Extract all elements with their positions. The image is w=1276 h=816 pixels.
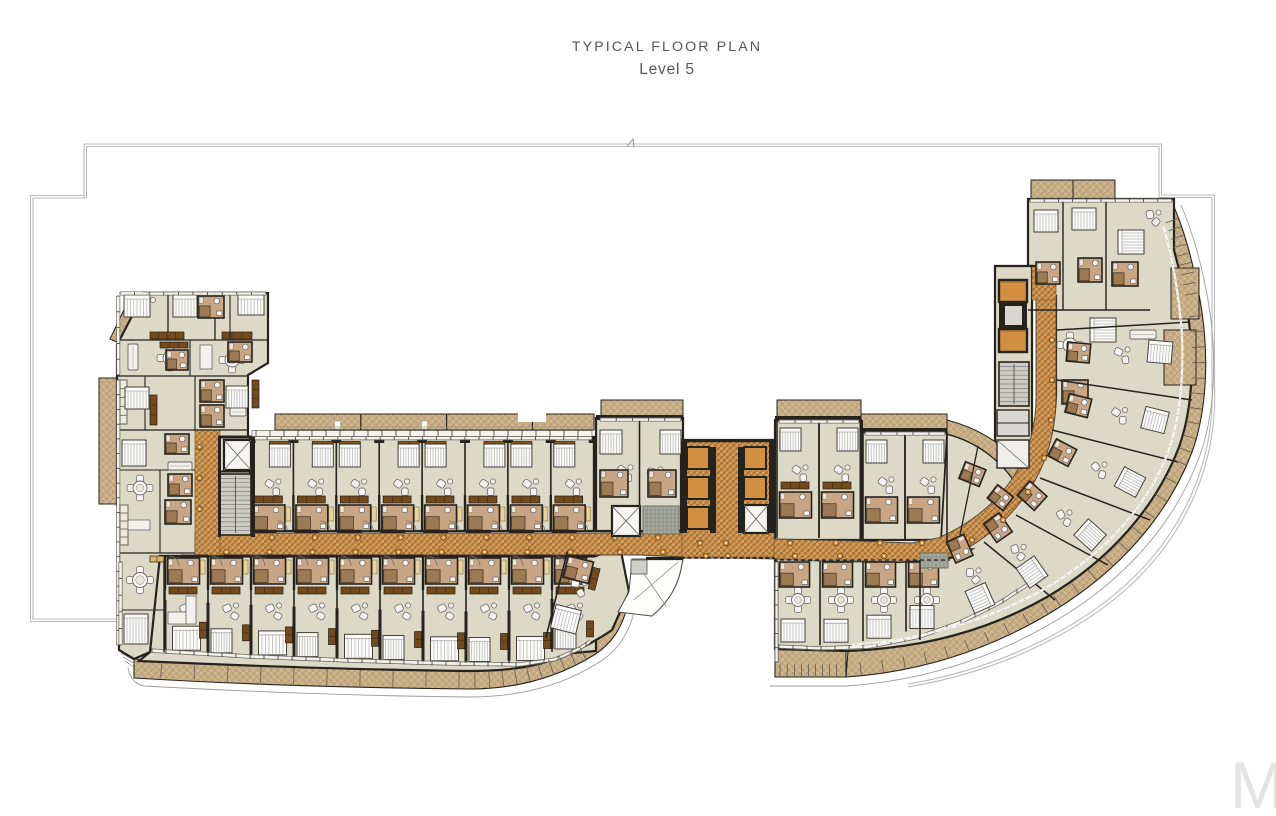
svg-text:TYPICAL FLOOR PLAN: TYPICAL FLOOR PLAN (572, 39, 762, 55)
svg-text:M: M (1230, 748, 1276, 816)
svg-text:Level 5: Level 5 (639, 61, 695, 78)
